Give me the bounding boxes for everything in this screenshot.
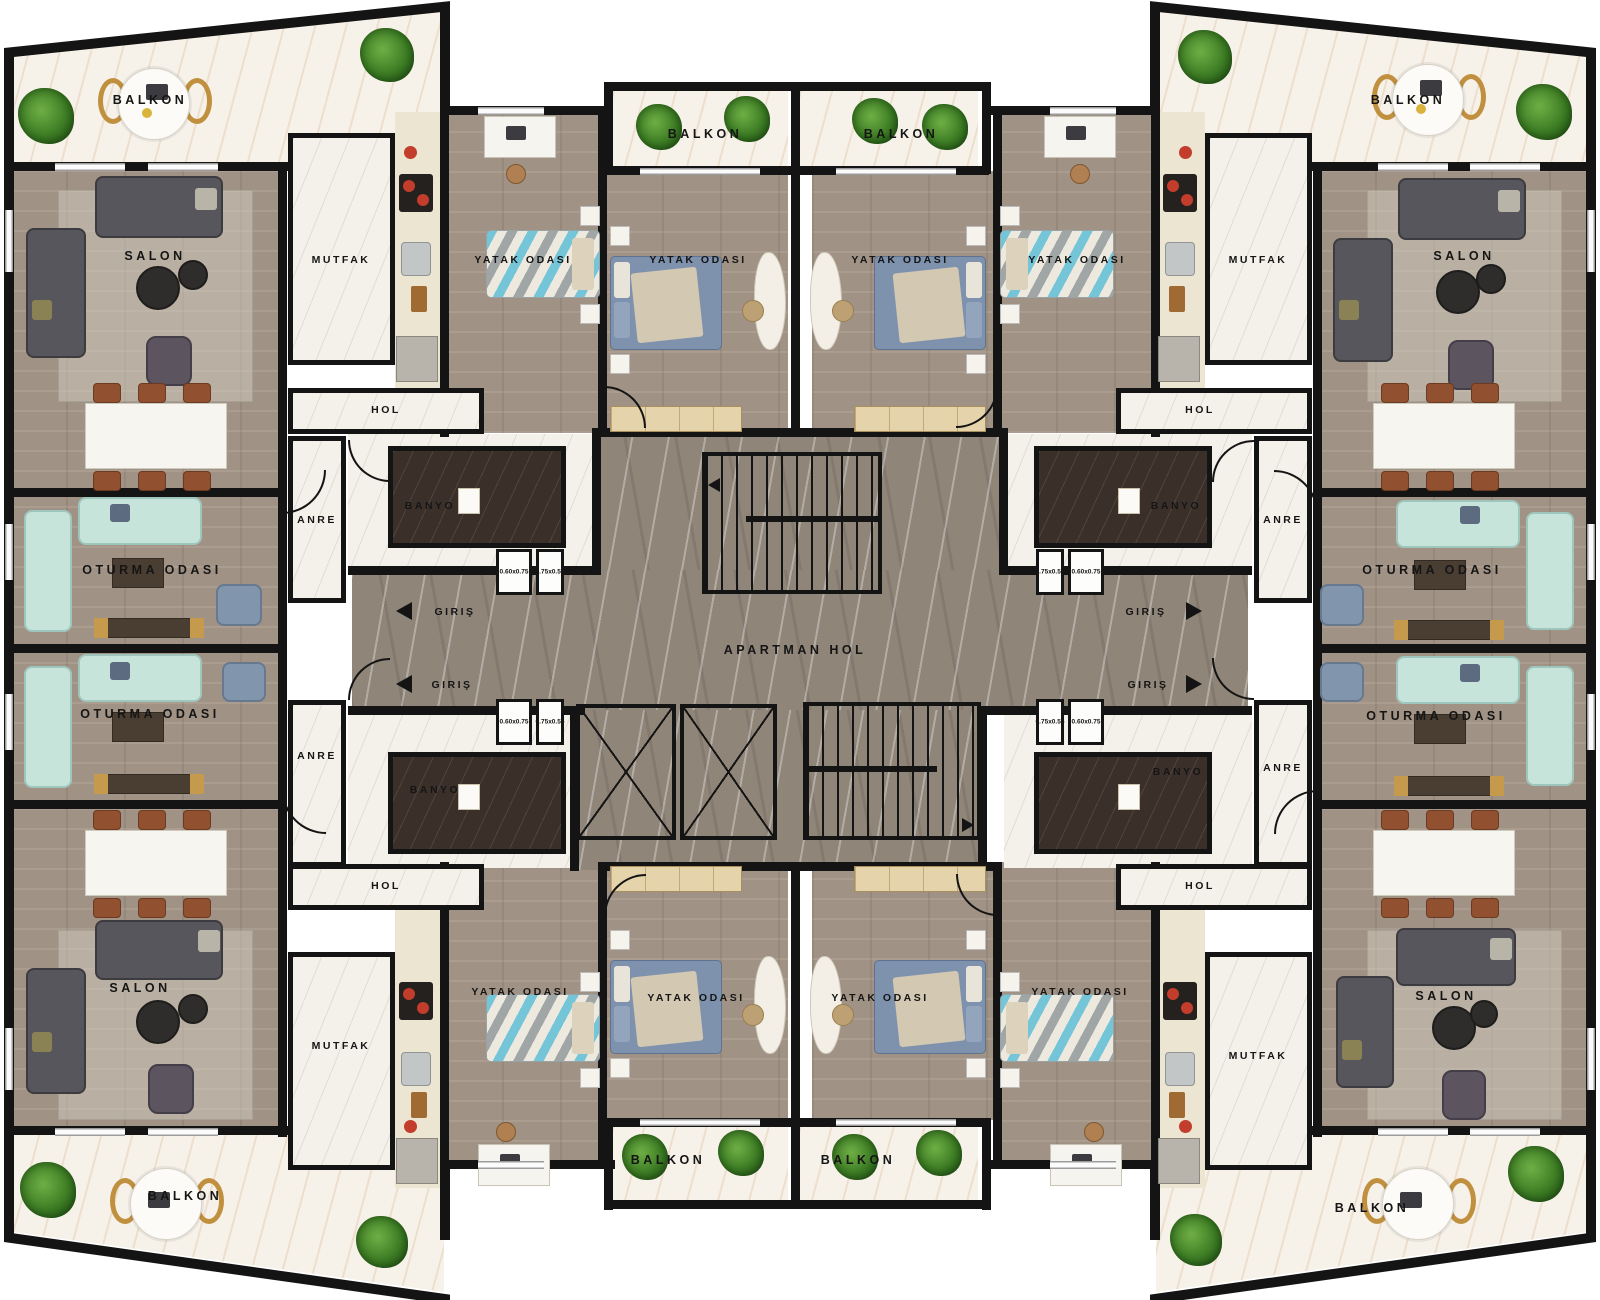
stove-burner xyxy=(1181,1002,1193,1014)
label-dryer-dim: 0.75x0.55 xyxy=(536,719,565,726)
label-banyo-left-lower: BANYO xyxy=(410,784,460,796)
window xyxy=(478,107,544,115)
wall xyxy=(999,428,1008,575)
armchair xyxy=(1320,662,1364,702)
dining-chair xyxy=(138,898,166,918)
label-mutfak-bottom-right: MUTFAK xyxy=(1229,1050,1288,1062)
window xyxy=(1587,1028,1595,1090)
stove xyxy=(399,174,433,212)
label-washer-dim: 0.60x0.75 xyxy=(500,569,529,576)
label-oturma-odasi-right-lower: OTURMA ODASI xyxy=(1366,709,1505,723)
window xyxy=(148,163,218,171)
kitchen-sink xyxy=(401,242,431,276)
pillow xyxy=(32,300,52,320)
label-balkon-bottom-center-right: BALKON xyxy=(821,1153,895,1167)
console-accent xyxy=(190,618,204,638)
label-salon-bottom-left: SALON xyxy=(109,981,170,995)
armchair xyxy=(1442,1070,1486,1120)
tv-console xyxy=(1394,620,1504,640)
stove xyxy=(1163,982,1197,1020)
label-balkon-bottom-left: BALKON xyxy=(148,1189,222,1203)
console-accent xyxy=(1394,620,1408,640)
kitchen-sink xyxy=(1165,242,1195,276)
fridge xyxy=(1158,336,1200,382)
label-mutfak-top-right: MUTFAK xyxy=(1229,254,1288,266)
label-anre-right-lower: ANRE xyxy=(1263,762,1303,774)
dining-chair xyxy=(1471,471,1499,491)
window xyxy=(1378,1128,1448,1136)
pillow xyxy=(1460,664,1480,682)
label-apartman-hol: APARTMAN HOL xyxy=(724,643,866,657)
window xyxy=(1050,107,1116,115)
coffee-table xyxy=(178,260,208,290)
kitchen-sink xyxy=(1165,1052,1195,1086)
tv-console xyxy=(1394,776,1504,796)
sofa xyxy=(1396,500,1520,548)
label-yatak-odasi-bottom-right-small: YATAK ODASI xyxy=(1031,986,1128,998)
label-balkon-top-center-right: BALKON xyxy=(864,127,938,141)
elevator-shaft-2 xyxy=(680,704,777,840)
dining-chair xyxy=(93,471,121,491)
dining-chair xyxy=(1471,810,1499,830)
dining-chair xyxy=(138,810,166,830)
dining-chair xyxy=(138,383,166,403)
pillow xyxy=(110,662,130,680)
console-accent xyxy=(94,618,108,638)
dining-chair xyxy=(93,898,121,918)
entry-arrow xyxy=(396,675,412,693)
nightstand xyxy=(580,304,600,324)
label-dryer-dim: 0.75x0.55 xyxy=(1036,719,1065,726)
dining-chair xyxy=(1471,383,1499,403)
label-balkon-top-right: BALKON xyxy=(1371,93,1445,107)
label-oturma-odasi-left-upper: OTURMA ODASI xyxy=(82,563,221,577)
label-yatak-odasi-top-right-large: YATAK ODASI xyxy=(851,254,948,266)
pillow xyxy=(614,262,630,298)
window xyxy=(5,524,13,580)
wall xyxy=(1317,800,1592,809)
stove-burner xyxy=(403,988,415,1000)
stove xyxy=(399,982,433,1020)
dining-chair xyxy=(1381,471,1409,491)
stove-burner xyxy=(417,194,429,206)
plant xyxy=(916,1130,962,1176)
dining-chair xyxy=(1426,898,1454,918)
flower-pot xyxy=(1179,1120,1192,1133)
wall xyxy=(440,10,450,114)
room-mutfak-bottom-left xyxy=(288,952,395,1170)
bathroom-sink xyxy=(1118,784,1140,810)
nightstand xyxy=(610,930,630,950)
pillow xyxy=(614,1006,630,1042)
dining-table xyxy=(85,830,227,896)
armchair xyxy=(222,662,266,702)
label-yatak-odasi-bottom-right-large: YATAK ODASI xyxy=(831,992,928,1004)
pillow xyxy=(966,262,982,298)
wall xyxy=(1317,644,1592,653)
label-hol-bottom-right: HOL xyxy=(1185,880,1215,892)
flower-pot xyxy=(404,146,417,159)
window xyxy=(148,1128,218,1136)
bathroom-sink xyxy=(1118,488,1140,514)
stair-direction-arrow xyxy=(962,818,974,832)
nightstand xyxy=(966,226,986,246)
window xyxy=(5,1028,13,1090)
laptop xyxy=(506,126,526,140)
entry-arrow xyxy=(396,602,412,620)
label-washer-dim: 0.60x0.75 xyxy=(1072,569,1101,576)
coffee-table xyxy=(178,994,208,1024)
window xyxy=(1470,163,1540,171)
label-giris-left-lower: GIRIŞ xyxy=(431,679,472,691)
armchair xyxy=(216,584,262,626)
window xyxy=(1587,210,1595,272)
blanket xyxy=(893,971,966,1048)
stool xyxy=(1070,164,1090,184)
pillow xyxy=(966,302,982,338)
nightstand xyxy=(610,1058,630,1078)
pillow xyxy=(966,966,982,1002)
stool xyxy=(496,1122,516,1142)
nightstand xyxy=(580,206,600,226)
pillow xyxy=(1006,1002,1028,1054)
pillow xyxy=(1006,238,1028,290)
dining-chair xyxy=(93,810,121,830)
room-mutfak-top-right xyxy=(1205,133,1312,365)
dining-chair xyxy=(138,471,166,491)
plant xyxy=(356,1216,408,1268)
nightstand xyxy=(580,1068,600,1088)
window xyxy=(478,1161,544,1169)
nightstand xyxy=(966,1058,986,1078)
label-balkon-top-left: BALKON xyxy=(113,93,187,107)
wall xyxy=(4,162,289,171)
label-banyo-right-upper: BANYO xyxy=(1151,500,1201,512)
cutting-board xyxy=(411,286,427,312)
wall xyxy=(592,428,601,575)
label-oturma-odasi-left-lower: OTURMA ODASI xyxy=(80,707,219,721)
label-washer-dim: 0.60x0.75 xyxy=(500,719,529,726)
stove-burner xyxy=(403,180,415,192)
sofa xyxy=(1526,666,1574,786)
blanket xyxy=(893,267,966,344)
armchair xyxy=(1320,584,1364,626)
pillow xyxy=(572,1002,594,1054)
pillow xyxy=(1460,506,1480,524)
dining-table xyxy=(85,403,227,469)
pouf xyxy=(742,300,764,322)
sofa xyxy=(78,654,202,702)
window xyxy=(836,1119,956,1126)
dining-chair xyxy=(1426,471,1454,491)
coffee-table xyxy=(1436,270,1480,314)
fridge xyxy=(1158,1138,1200,1184)
dining-chair xyxy=(183,810,211,830)
room-mutfak-top-left xyxy=(288,133,395,365)
label-yatak-odasi-top-right-small: YATAK ODASI xyxy=(1028,254,1125,266)
window xyxy=(5,210,13,272)
stove-burner xyxy=(1167,988,1179,1000)
nightstand xyxy=(610,354,630,374)
label-dryer-dim: 0.75x0.55 xyxy=(536,569,565,576)
tv-console xyxy=(94,618,204,638)
label-yatak-odasi-bottom-left-large: YATAK ODASI xyxy=(647,992,744,1004)
wall xyxy=(4,1126,289,1135)
window xyxy=(55,163,125,171)
tv-console xyxy=(94,774,204,794)
sofa xyxy=(24,510,72,632)
armchair xyxy=(148,1064,194,1114)
wall xyxy=(440,1160,450,1240)
pillow xyxy=(198,930,220,952)
label-balkon-bottom-center-left: BALKON xyxy=(631,1153,705,1167)
dining-chair xyxy=(1381,810,1409,830)
wall xyxy=(978,706,1252,715)
dining-chair xyxy=(1471,898,1499,918)
bathroom-sink xyxy=(458,488,480,514)
stool xyxy=(506,164,526,184)
nightstand xyxy=(580,972,600,992)
label-salon-bottom-right: SALON xyxy=(1415,989,1476,1003)
window xyxy=(1587,524,1595,580)
label-hol-top-left: HOL xyxy=(371,404,401,416)
pillow xyxy=(1339,300,1359,320)
cutting-board xyxy=(1169,1092,1185,1118)
coffee-table xyxy=(1476,264,1506,294)
pillow xyxy=(195,188,217,210)
stool xyxy=(1084,1122,1104,1142)
label-giris-right-lower: GIRIŞ xyxy=(1127,679,1168,691)
dining-table xyxy=(1373,830,1515,896)
blanket xyxy=(631,971,704,1048)
window xyxy=(836,168,956,175)
coffee-table xyxy=(136,266,180,310)
wall xyxy=(1311,1126,1596,1135)
pillow xyxy=(1498,190,1520,212)
sofa xyxy=(24,666,72,788)
dining-chair xyxy=(183,898,211,918)
plant xyxy=(718,1130,764,1176)
console-accent xyxy=(1490,776,1504,796)
dining-chair xyxy=(1426,383,1454,403)
wall xyxy=(791,85,800,435)
sofa xyxy=(78,497,202,545)
label-balkon-bottom-right: BALKON xyxy=(1335,1201,1409,1215)
pillow xyxy=(1342,1040,1362,1060)
plant xyxy=(1170,1214,1222,1266)
label-banyo-right-lower: BANYO xyxy=(1153,766,1203,778)
window xyxy=(640,168,760,175)
nightstand xyxy=(1000,1068,1020,1088)
dining-chair xyxy=(1381,383,1409,403)
pillow xyxy=(614,302,630,338)
floor-plan: BALKON BALKON BALKON BALKON BALKON BALKO… xyxy=(0,0,1600,1300)
pillow xyxy=(966,1006,982,1042)
entry-arrow xyxy=(1186,602,1202,620)
sofa xyxy=(1526,512,1574,630)
nightstand xyxy=(966,354,986,374)
window xyxy=(5,694,13,750)
label-hol-top-right: HOL xyxy=(1185,404,1215,416)
pouf xyxy=(832,1004,854,1026)
sofa xyxy=(26,968,86,1094)
pillow xyxy=(1490,938,1512,960)
blanket xyxy=(631,267,704,344)
wall xyxy=(8,800,283,809)
label-anre-left-upper: ANRE xyxy=(297,514,337,526)
coffee-table xyxy=(136,1000,180,1044)
bathroom-sink xyxy=(458,784,480,810)
flower-pot xyxy=(404,1120,417,1133)
sofa xyxy=(1396,656,1520,704)
flower-pot xyxy=(1179,146,1192,159)
console-accent xyxy=(1490,620,1504,640)
window xyxy=(640,1119,760,1126)
label-mutfak-top-left: MUTFAK xyxy=(312,254,371,266)
wall xyxy=(1317,488,1592,497)
pillow xyxy=(614,966,630,1002)
window xyxy=(1470,1128,1540,1136)
label-yatak-odasi-bottom-left-small: YATAK ODASI xyxy=(471,986,568,998)
stove-burner xyxy=(417,1002,429,1014)
fridge xyxy=(396,336,438,382)
pillow xyxy=(572,238,594,290)
wall xyxy=(1311,162,1596,171)
console-accent xyxy=(94,774,108,794)
label-dryer-dim: 0.75x0.55 xyxy=(1036,569,1065,576)
fridge xyxy=(396,1138,438,1184)
wall xyxy=(604,1118,613,1210)
label-anre-right-upper: ANRE xyxy=(1263,514,1303,526)
nightstand xyxy=(1000,304,1020,324)
wall xyxy=(604,1200,989,1209)
console-accent xyxy=(1394,776,1408,796)
window xyxy=(55,1128,125,1136)
wall xyxy=(982,1118,991,1210)
sofa xyxy=(1336,976,1394,1088)
room-anre-left-lower xyxy=(288,700,346,867)
nightstand xyxy=(966,930,986,950)
label-hol-bottom-left: HOL xyxy=(371,880,401,892)
label-giris-right-upper: GIRIŞ xyxy=(1125,606,1166,618)
label-mutfak-bottom-left: MUTFAK xyxy=(312,1040,371,1052)
label-washer-dim: 0.60x0.75 xyxy=(1072,719,1101,726)
dining-chair xyxy=(183,471,211,491)
staircase-upper xyxy=(702,452,882,594)
entry-arrow xyxy=(1186,675,1202,693)
kitchen-sink xyxy=(401,1052,431,1086)
label-giris-left-upper: GIRIŞ xyxy=(434,606,475,618)
stove-burner xyxy=(1167,180,1179,192)
staircase-lower xyxy=(803,702,981,840)
console-accent xyxy=(190,774,204,794)
room-anre-right-lower xyxy=(1254,700,1312,867)
cutting-board xyxy=(1169,286,1185,312)
pouf xyxy=(832,300,854,322)
dining-chair xyxy=(93,383,121,403)
label-balkon-top-center-left: BALKON xyxy=(668,127,742,141)
label-salon-top-right: SALON xyxy=(1433,249,1494,263)
label-anre-left-lower: ANRE xyxy=(297,750,337,762)
laptop xyxy=(1066,126,1086,140)
window xyxy=(1587,694,1595,750)
pillow xyxy=(110,504,130,522)
pillow xyxy=(32,1032,52,1052)
coffee-table xyxy=(1470,1000,1498,1028)
nightstand xyxy=(610,226,630,246)
wall xyxy=(791,862,800,1209)
elevator-shaft-1 xyxy=(576,704,676,840)
label-oturma-odasi-right-upper: OTURMA ODASI xyxy=(1362,563,1501,577)
wall xyxy=(982,82,991,174)
wall xyxy=(8,644,283,653)
armchair xyxy=(146,336,192,386)
nightstand xyxy=(1000,972,1020,992)
dining-chair xyxy=(1426,810,1454,830)
window xyxy=(1378,163,1448,171)
dining-chair xyxy=(1381,898,1409,918)
cutting-board xyxy=(411,1092,427,1118)
sofa xyxy=(26,228,86,358)
stair-direction-arrow xyxy=(708,478,720,492)
nightstand xyxy=(1000,206,1020,226)
pouf xyxy=(742,1004,764,1026)
label-yatak-odasi-top-left-large: YATAK ODASI xyxy=(649,254,746,266)
sunflower-decor xyxy=(142,108,152,118)
label-salon-top-left: SALON xyxy=(124,249,185,263)
dining-table xyxy=(1373,403,1515,469)
stove xyxy=(1163,174,1197,212)
wall xyxy=(1150,10,1160,114)
dining-chair xyxy=(183,383,211,403)
window xyxy=(1050,1161,1116,1169)
label-yatak-odasi-top-left-small: YATAK ODASI xyxy=(474,254,571,266)
stove-burner xyxy=(1181,194,1193,206)
label-banyo-left-upper: BANYO xyxy=(405,500,455,512)
